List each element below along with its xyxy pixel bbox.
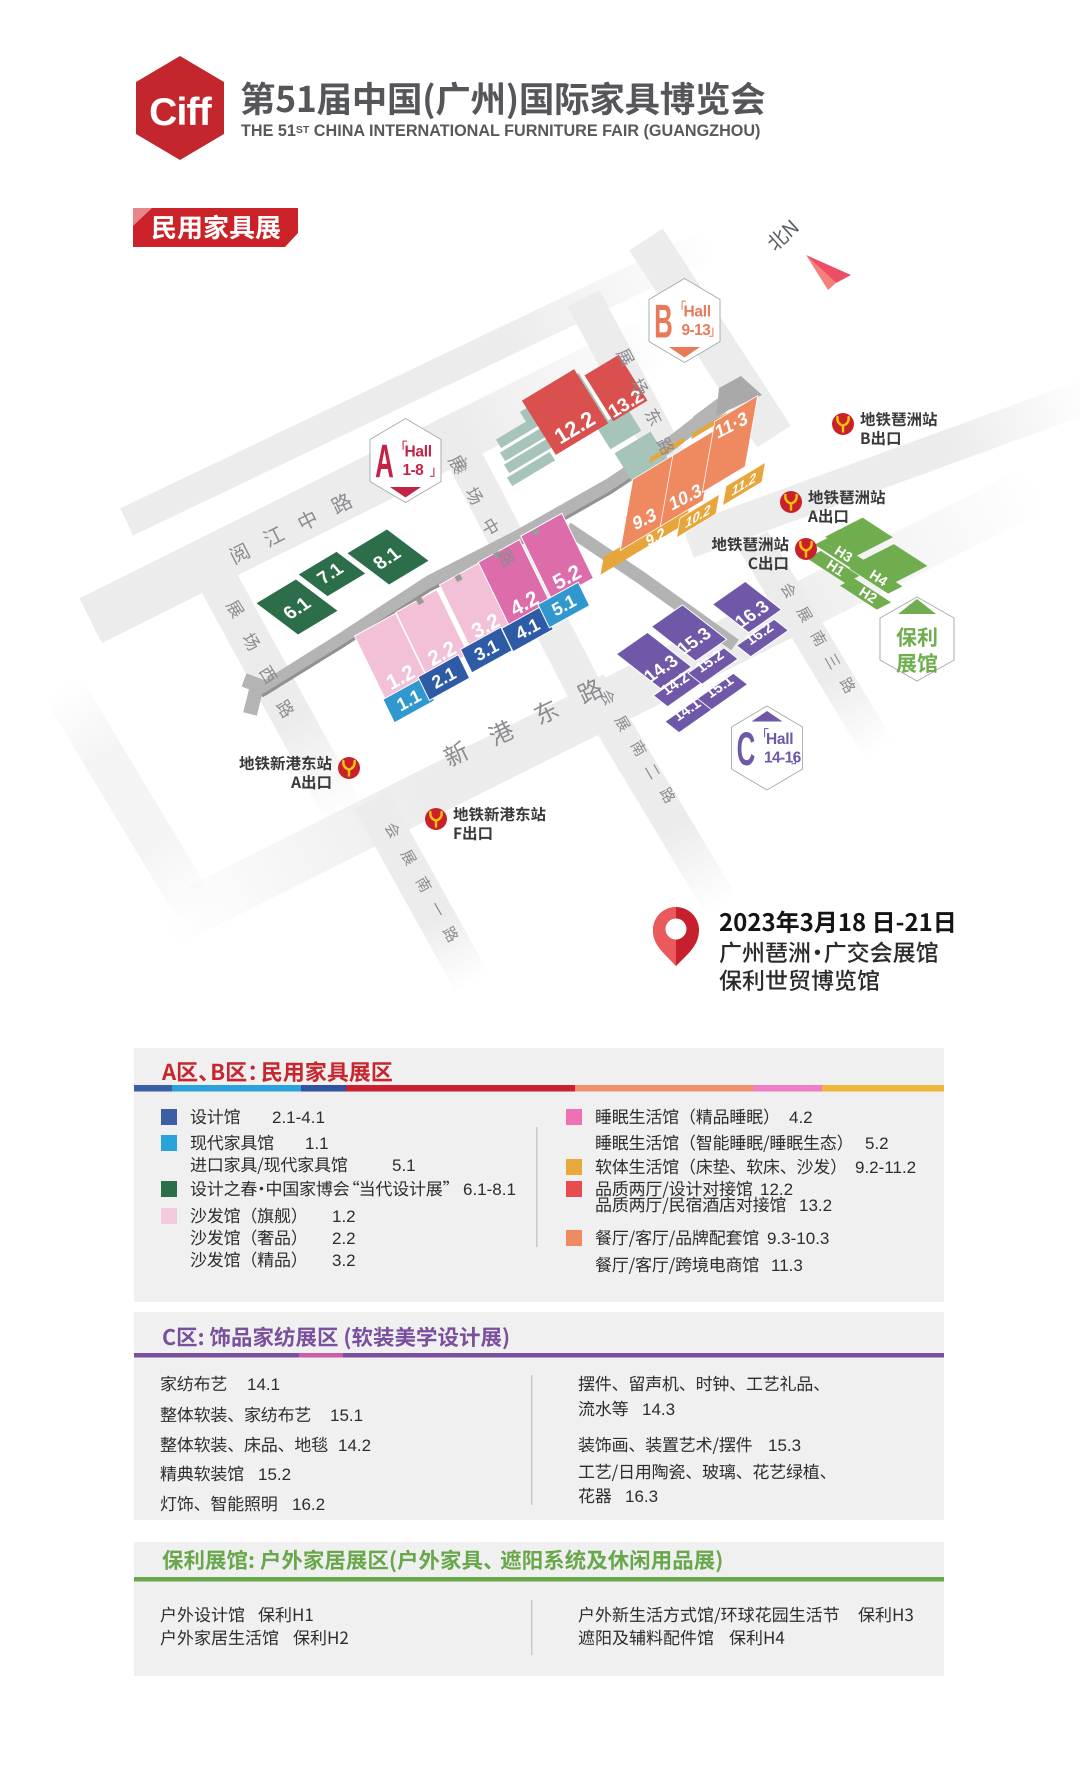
svg-text:14-16: 14-16 [764,750,802,767]
svg-text:Hall: Hall [684,304,711,321]
svg-text:2.1-4.1: 2.1-4.1 [272,1108,325,1127]
svg-text:11.2: 11.2 [730,469,757,500]
svg-text:9.2-11.2: 9.2-11.2 [855,1158,916,1177]
svg-text:9.3-10.3: 9.3-10.3 [767,1229,829,1248]
svg-text:1.1: 1.1 [305,1134,329,1153]
svg-text:12.2: 12.2 [760,1180,793,1199]
svg-text:13.2: 13.2 [799,1196,832,1215]
svg-text:15.3: 15.3 [768,1436,801,1455]
svg-text:C: C [737,724,756,776]
svg-text:14.1: 14.1 [247,1375,280,1394]
svg-text:5.2: 5.2 [865,1134,889,1153]
svg-text:2.2: 2.2 [332,1229,356,1248]
svg-text:16.2: 16.2 [292,1495,325,1514]
svg-text:4.2: 4.2 [789,1108,813,1127]
svg-text:15.2: 15.2 [258,1465,291,1484]
svg-text:THE 51ST CHINA INTERNATIONAL F: THE 51ST CHINA INTERNATIONAL FURNITURE F… [241,122,760,140]
svg-text:Hall: Hall [405,444,432,461]
svg-text:1.2: 1.2 [332,1207,356,1226]
svg-text:Hall: Hall [766,731,793,748]
svg-text:B: B [654,297,673,349]
svg-text:6.1-8.1: 6.1-8.1 [463,1180,516,1199]
svg-text:11.3: 11.3 [771,1256,803,1275]
svg-text:14.3: 14.3 [642,1400,675,1419]
svg-text:5.1: 5.1 [392,1156,416,1175]
svg-text:9-13: 9-13 [682,322,712,339]
svg-text:3.2: 3.2 [332,1251,356,1270]
svg-text:A: A [375,437,394,489]
svg-text:15.1: 15.1 [330,1406,363,1425]
svg-text:14.2: 14.2 [338,1436,371,1455]
svg-text:Ciff: Ciff [149,91,213,134]
svg-text:16.3: 16.3 [625,1487,658,1506]
svg-text:1-8: 1-8 [403,462,425,479]
